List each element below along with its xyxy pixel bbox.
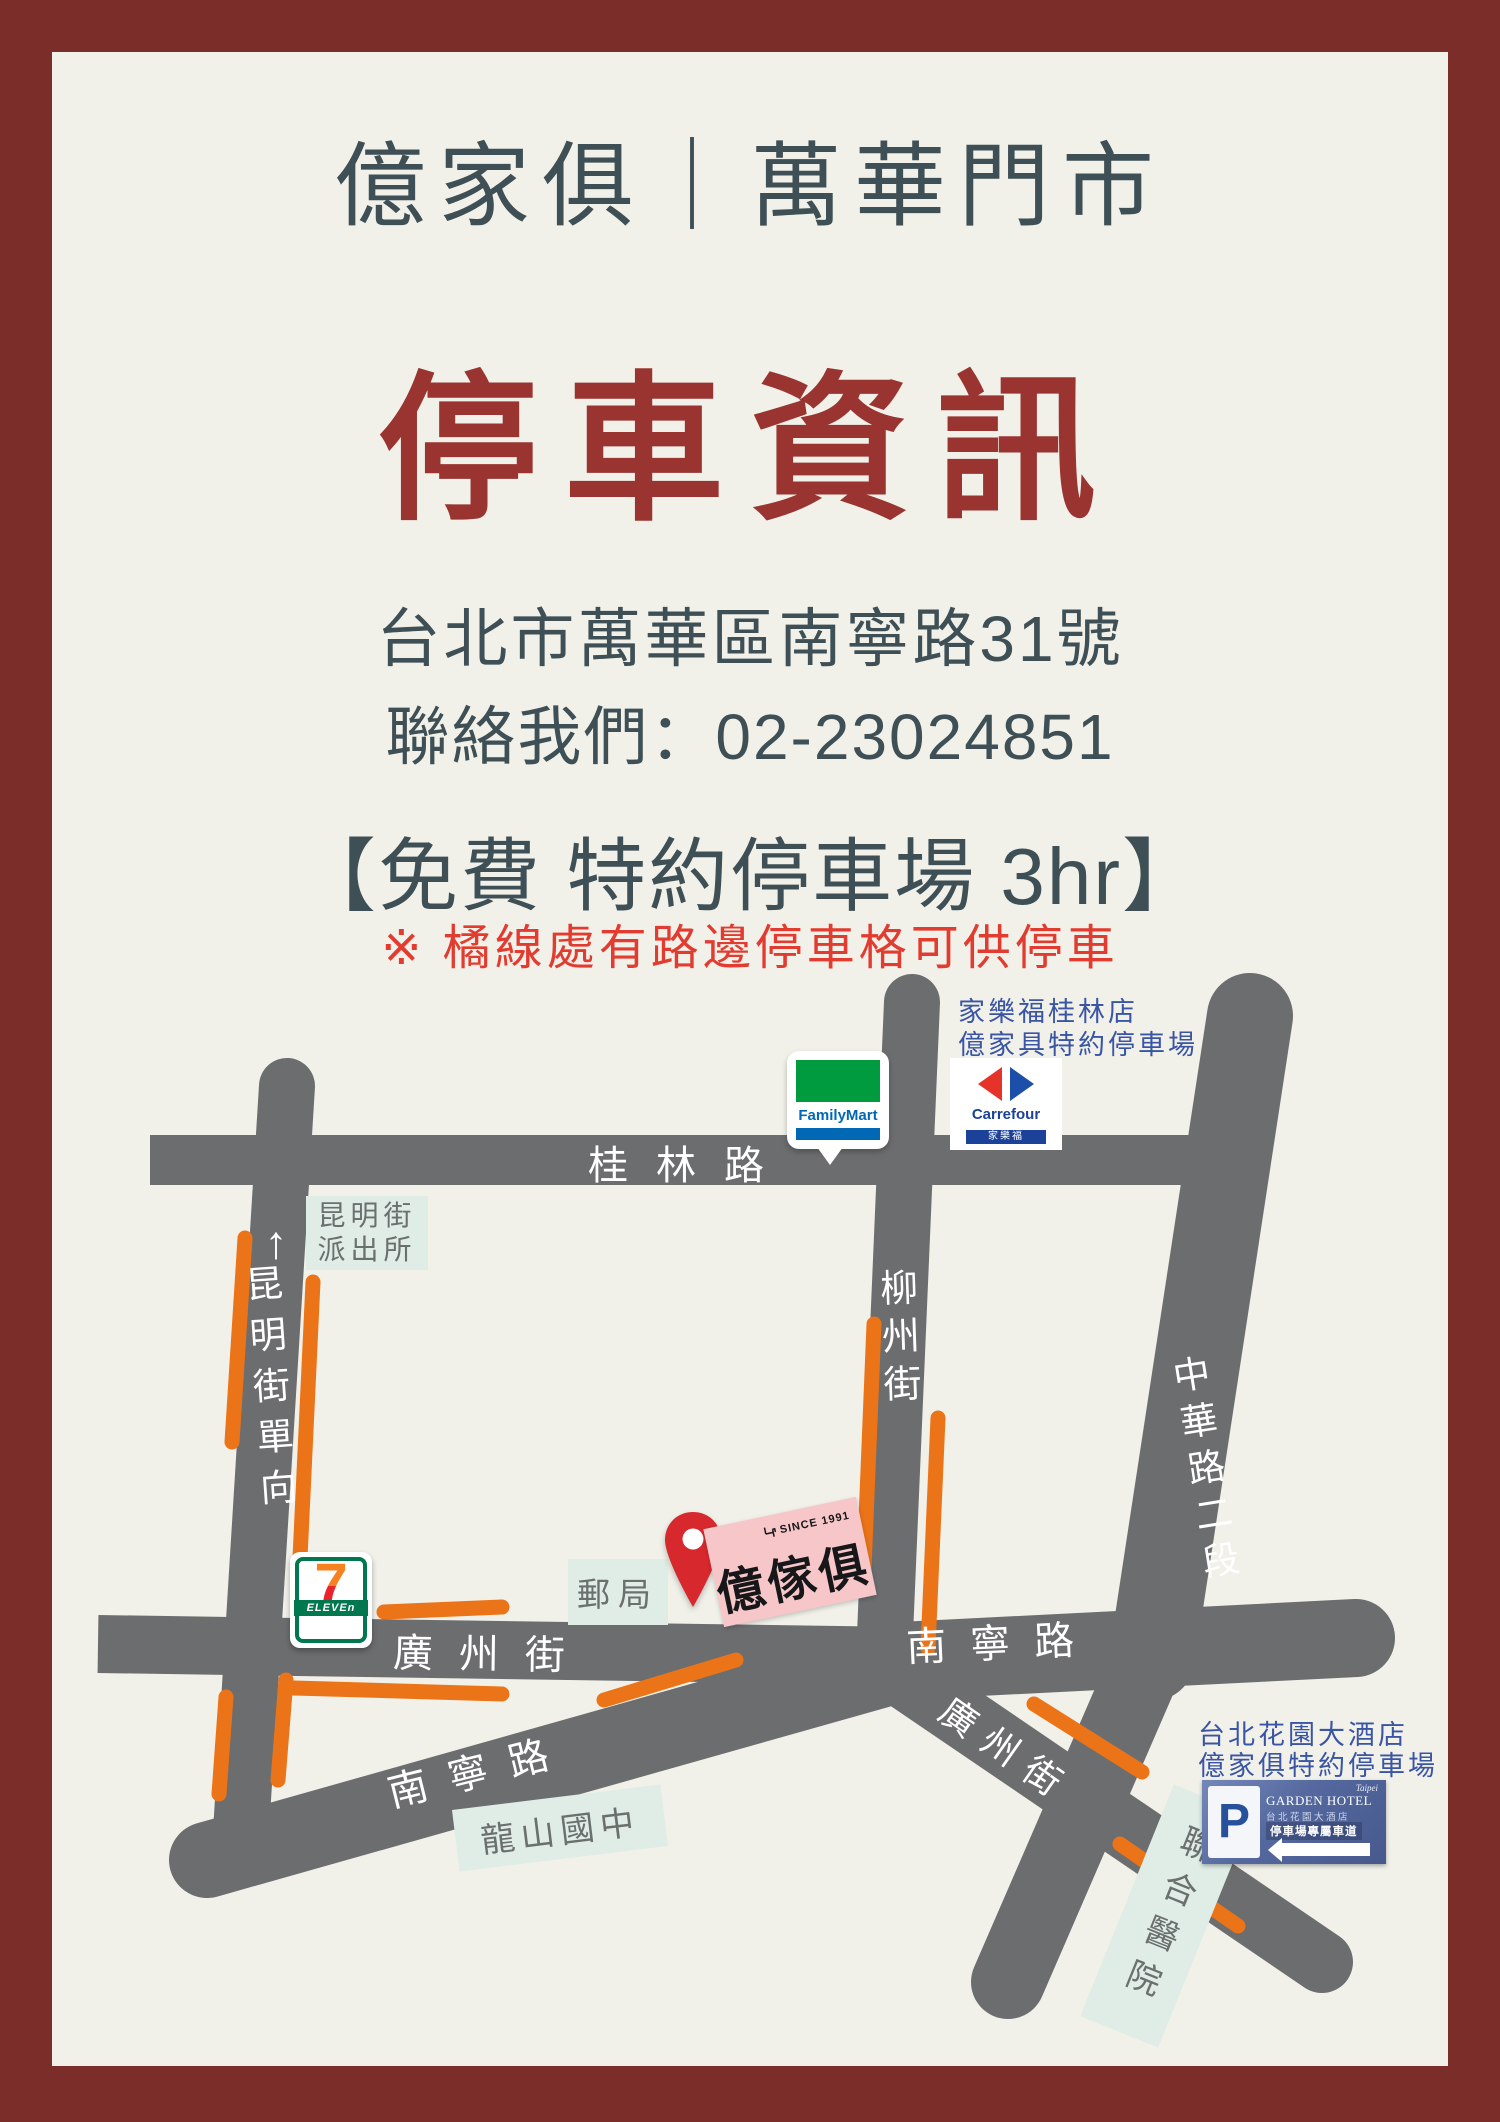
- street-label-guangzhou-west: 廣州街: [393, 1621, 592, 1682]
- parking-p-icon: P: [1208, 1786, 1260, 1858]
- carrefour-parking-note: 家樂福桂林店 億家具特約停車場: [958, 996, 1198, 1062]
- familymart-blue-band: [796, 1128, 880, 1140]
- parking-info-poster: 億家俱｜萬華門市 停車資訊 台北市萬華區南寧路31號 聯絡我們：02-23024…: [0, 0, 1500, 2122]
- hotel-city-text: Taipei: [1356, 1783, 1378, 1793]
- post-office-label: 郵局: [568, 1559, 668, 1625]
- carrefour-icon: [976, 1064, 1036, 1104]
- carrefour-marker: Carrefour 家樂福: [950, 1058, 1062, 1150]
- carrefour-logo-text: Carrefour: [950, 1106, 1062, 1123]
- seven-eleven-eleven-band: ELEVEn: [294, 1600, 368, 1616]
- street-label-nanning-east: 南寧路: [905, 1607, 1099, 1673]
- hotel-parking-note: 台北花園大酒店 億家俱特約停車場: [1198, 1720, 1438, 1782]
- hotel-name-en: GARDEN HOTEL: [1266, 1793, 1372, 1809]
- seven-eleven-marker: 7 ELEVEn: [290, 1552, 372, 1648]
- police-station-line1: 昆明街: [317, 1199, 416, 1233]
- street-label-guilin: 桂林路: [588, 1133, 792, 1191]
- chair-icon: [762, 1524, 777, 1539]
- garden-hotel-parking-sign: P Taipei GARDEN HOTEL 台北花園大酒店 停車場專屬車道: [1202, 1780, 1386, 1864]
- familymart-green-band: [796, 1060, 880, 1102]
- familymart-logo-text: FamilyMart: [787, 1107, 889, 1124]
- street-label-liuzhou: 柳州街: [867, 1267, 927, 1413]
- familymart-marker: FamilyMart: [787, 1051, 889, 1149]
- hotel-name-zh: 台北花園大酒店: [1266, 1809, 1350, 1823]
- police-station-line2: 派出所: [317, 1233, 416, 1267]
- carrefour-zh-band: 家樂福: [966, 1130, 1046, 1144]
- oneway-arrow-icon: ↑: [265, 1215, 288, 1269]
- left-arrow-icon: [1282, 1843, 1370, 1856]
- police-station-label: 昆明街 派出所: [306, 1196, 428, 1270]
